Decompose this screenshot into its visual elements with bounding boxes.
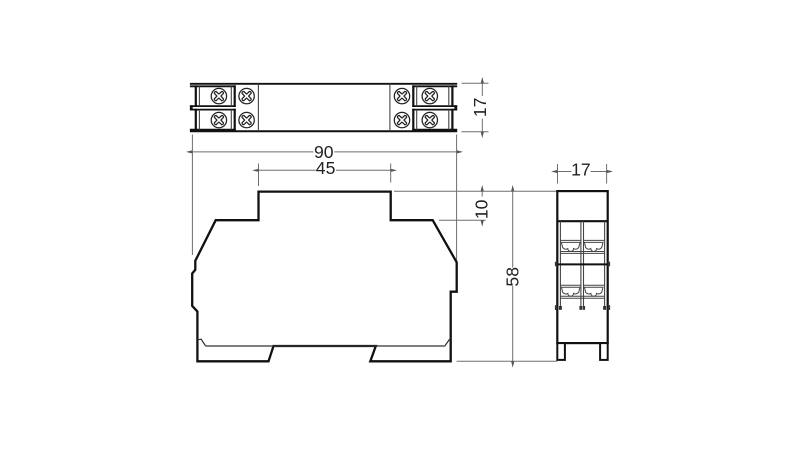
- svg-text:58: 58: [503, 267, 523, 287]
- svg-text:45: 45: [316, 158, 336, 178]
- svg-text:17: 17: [571, 160, 591, 180]
- svg-text:17: 17: [470, 98, 490, 118]
- svg-text:10: 10: [471, 199, 491, 219]
